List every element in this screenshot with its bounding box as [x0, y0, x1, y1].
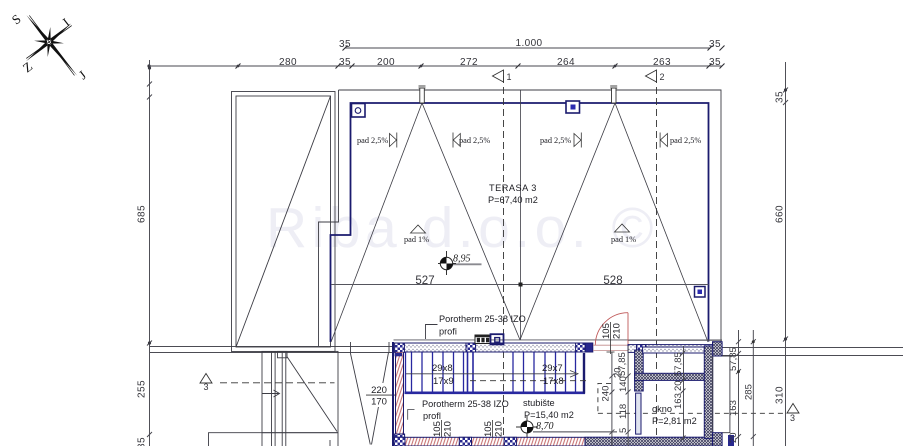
svg-text:profi: profi — [439, 327, 457, 337]
svg-text:220: 220 — [371, 385, 387, 396]
svg-text:Porotherm 25-38 IZO: Porotherm 25-38 IZO — [422, 399, 509, 409]
svg-text:17x9: 17x9 — [433, 376, 454, 387]
svg-text:35: 35 — [137, 437, 148, 446]
svg-text:210: 210 — [443, 421, 454, 437]
svg-text:pad 2,5%: pad 2,5% — [459, 136, 490, 145]
svg-text:pad 1%: pad 1% — [404, 235, 429, 244]
svg-text:3: 3 — [790, 413, 795, 423]
svg-text:P=2,81 m2: P=2,81 m2 — [652, 416, 697, 426]
svg-text:528: 528 — [603, 275, 622, 287]
svg-text:263: 263 — [653, 57, 671, 68]
svg-text:Riba d.o.o. ©: Riba d.o.o. © — [266, 196, 658, 260]
svg-text:35: 35 — [709, 39, 721, 50]
svg-text:8,70: 8,70 — [536, 421, 554, 432]
svg-text:118: 118 — [618, 404, 629, 419]
svg-text:profl: profl — [423, 411, 441, 421]
svg-text:TERASA 3: TERASA 3 — [489, 183, 537, 193]
svg-text:527: 527 — [415, 275, 434, 287]
svg-text:2: 2 — [660, 72, 665, 82]
svg-text:140: 140 — [618, 376, 629, 392]
svg-text:57,85: 57,85 — [673, 352, 684, 376]
svg-text:35: 35 — [339, 57, 351, 68]
svg-text:35: 35 — [775, 91, 786, 103]
svg-text:272: 272 — [460, 57, 478, 68]
svg-text:163: 163 — [673, 393, 684, 409]
svg-text:29x7: 29x7 — [542, 363, 563, 374]
svg-text:163: 163 — [728, 400, 739, 416]
svg-text:8,95: 8,95 — [453, 254, 471, 265]
svg-text:1: 1 — [507, 72, 512, 82]
svg-text:pad 1%: pad 1% — [611, 235, 636, 244]
svg-text:20: 20 — [728, 432, 739, 443]
svg-text:Porotherm 25-38 IZO: Porotherm 25-38 IZO — [439, 314, 526, 324]
svg-text:310: 310 — [775, 386, 786, 404]
svg-text:3: 3 — [204, 382, 209, 392]
svg-text:pad 2,5%: pad 2,5% — [357, 136, 388, 145]
svg-text:pad 2,5%: pad 2,5% — [540, 136, 571, 145]
svg-text:5: 5 — [618, 428, 629, 433]
svg-text:17x8: 17x8 — [543, 376, 564, 387]
svg-text:P=67,40 m2: P=67,40 m2 — [488, 195, 538, 205]
svg-text:57,85: 57,85 — [617, 352, 628, 376]
svg-text:255: 255 — [137, 380, 148, 398]
svg-text:35: 35 — [709, 57, 721, 68]
svg-text:660: 660 — [775, 205, 786, 223]
svg-text:264: 264 — [557, 57, 575, 68]
svg-text:20: 20 — [673, 380, 684, 391]
svg-text:685: 685 — [137, 205, 148, 223]
svg-text:240: 240 — [601, 386, 612, 402]
svg-text:29x8: 29x8 — [432, 363, 453, 374]
svg-text:1.000: 1.000 — [515, 38, 542, 49]
svg-text:35: 35 — [339, 39, 351, 50]
svg-text:stubište: stubište — [523, 398, 555, 408]
svg-text:170: 170 — [371, 397, 387, 408]
svg-text:210: 210 — [494, 421, 505, 437]
svg-text:285: 285 — [744, 384, 755, 400]
svg-text:280: 280 — [279, 57, 297, 68]
svg-text:57,85: 57,85 — [728, 347, 739, 371]
svg-text:pad 2,5%: pad 2,5% — [670, 136, 701, 145]
svg-text:200: 200 — [377, 57, 395, 68]
svg-text:P=15,40 m2: P=15,40 m2 — [524, 410, 574, 420]
svg-text:210: 210 — [612, 323, 623, 339]
svg-text:okno: okno — [652, 404, 672, 414]
